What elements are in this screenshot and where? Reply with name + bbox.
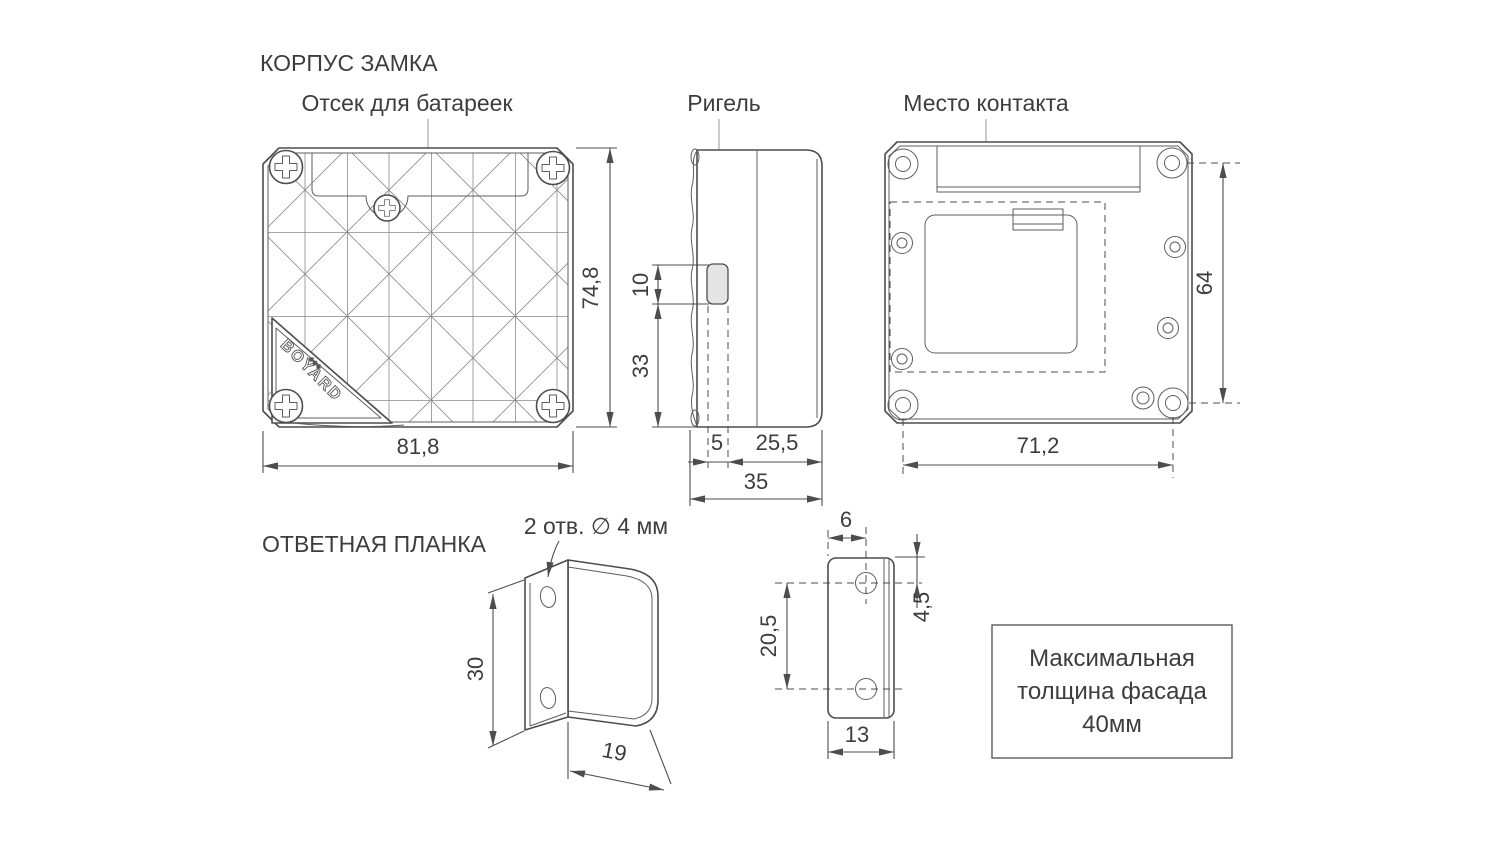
plate-hole-spacing-dim: 20,5 [756,615,781,658]
strike-plate-flat-view: 6 4,5 20,5 13 [756,507,934,759]
screw-center-icon [374,195,400,221]
note-line-3: 40мм [1082,711,1142,738]
strike-plate-title: ОТВЕТНАЯ ПЛАНКА [262,531,487,557]
mounting-plate-wavy-edge [691,151,697,426]
holes-note-label: 2 отв. ∅ 4 мм [524,513,668,539]
side-view: 10 33 5 25,5 35 [628,149,822,506]
front-width-dim: 81,8 [397,434,440,459]
bolt-height-dim: 10 [628,273,653,297]
screw-top-right-icon [537,152,570,185]
case-front-depth-dim: 25,5 [756,430,799,455]
back-body-outline [885,142,1192,423]
front-view: BOYARD 74,8 81,8 [263,148,617,473]
bolt-protrusion-dim: 5 [711,430,723,455]
plate-width-dim: 13 [845,722,869,747]
battery-compartment-label: Отсек для батареек [301,90,513,116]
screw-top-left-icon [270,151,303,184]
plate-flange-depth-dim: 19 [600,737,629,766]
note-line-2: толщина фасада [1017,678,1207,705]
technical-drawing-page: КОРПУС ЗАМКА Отсек для батареек Ригель М… [0,0,1500,843]
note-line-1: Максимальная [1029,645,1195,672]
bolt-shape [707,264,728,304]
plate-depth-dim-line [570,771,664,790]
screw-bottom-right-icon [537,390,570,423]
screw-bottom-left-icon [270,390,303,423]
back-hole-spacing-h-dim: 71,2 [1017,433,1060,458]
plate-hole-edge-offset-dim: 6 [840,507,852,532]
lock-body-title: КОРПУС ЗАМКА [260,50,438,76]
front-height-dim: 74,8 [578,267,603,310]
bolt-to-bottom-dim: 33 [628,354,653,378]
strike-plate-3d-face [525,560,568,730]
case-total-depth-dim: 35 [744,469,768,494]
bolt-label: Ригель [687,90,761,116]
back-view: 64 71,2 [885,142,1240,478]
contact-area-label: Место контакта [903,90,1069,116]
lock-technical-drawing: КОРПУС ЗАМКА Отсек для батареек Ригель М… [0,0,1500,843]
plate-height-dim: 30 [463,657,488,681]
note-box: Максимальная толщина фасада 40мм [992,625,1232,758]
strike-plate-3d-view: 30 19 [463,541,671,790]
back-hole-spacing-v-dim: 64 [1192,271,1217,295]
plate-hole-top-offset-dim: 4,5 [909,592,934,623]
strike-flange-3d [568,560,658,726]
